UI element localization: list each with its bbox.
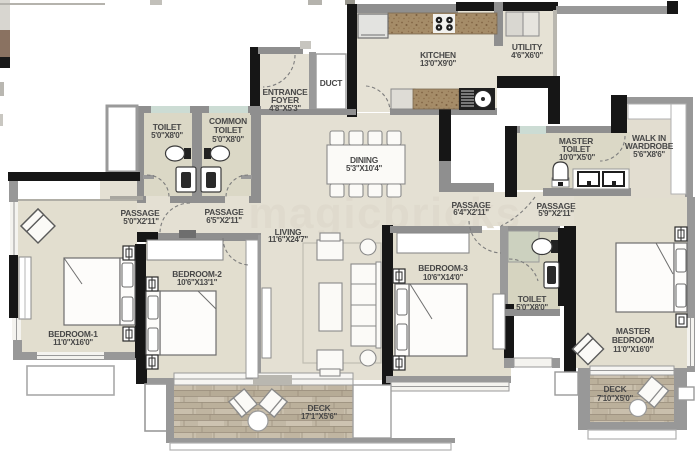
svg-text:11'6"X24'7": 11'6"X24'7" <box>268 235 308 244</box>
svg-text:5'0"X8'0": 5'0"X8'0" <box>212 135 244 144</box>
svg-text:BEDROOM: BEDROOM <box>612 335 655 345</box>
svg-text:7'10"X5'0": 7'10"X5'0" <box>597 394 633 403</box>
svg-text:TOILET: TOILET <box>214 125 244 135</box>
svg-text:BEDROOM-3: BEDROOM-3 <box>418 263 468 273</box>
svg-text:4'8"X5'3": 4'8"X5'3" <box>269 104 301 113</box>
svg-text:5'3"X10'4": 5'3"X10'4" <box>346 164 382 173</box>
svg-text:5'0"X2'11": 5'0"X2'11" <box>123 217 159 226</box>
svg-text:5'0"X8'0": 5'0"X8'0" <box>151 131 183 140</box>
svg-text:13'0"X9'0": 13'0"X9'0" <box>420 59 456 68</box>
svg-text:6'4"X2'11": 6'4"X2'11" <box>453 208 489 217</box>
svg-text:10'6"X13'1": 10'6"X13'1" <box>177 278 218 287</box>
svg-text:6'5"X2'11": 6'5"X2'11" <box>206 216 242 225</box>
svg-text:DECK: DECK <box>604 384 627 394</box>
svg-text:DUCT: DUCT <box>320 78 344 88</box>
svg-text:11'0"X16'0": 11'0"X16'0" <box>613 345 653 354</box>
svg-text:5'6"X8'6": 5'6"X8'6" <box>633 150 665 159</box>
svg-text:11'0"X16'0": 11'0"X16'0" <box>53 338 93 347</box>
svg-text:10'0"X5'0": 10'0"X5'0" <box>559 153 595 162</box>
svg-text:5'0"X8'0": 5'0"X8'0" <box>516 303 548 312</box>
svg-text:10'6"X14'0": 10'6"X14'0" <box>423 273 464 282</box>
svg-text:5'9"X2'11": 5'9"X2'11" <box>538 209 574 218</box>
svg-text:4'6"X6'0": 4'6"X6'0" <box>511 51 543 60</box>
svg-text:17'1"X5'6": 17'1"X5'6" <box>301 412 337 421</box>
